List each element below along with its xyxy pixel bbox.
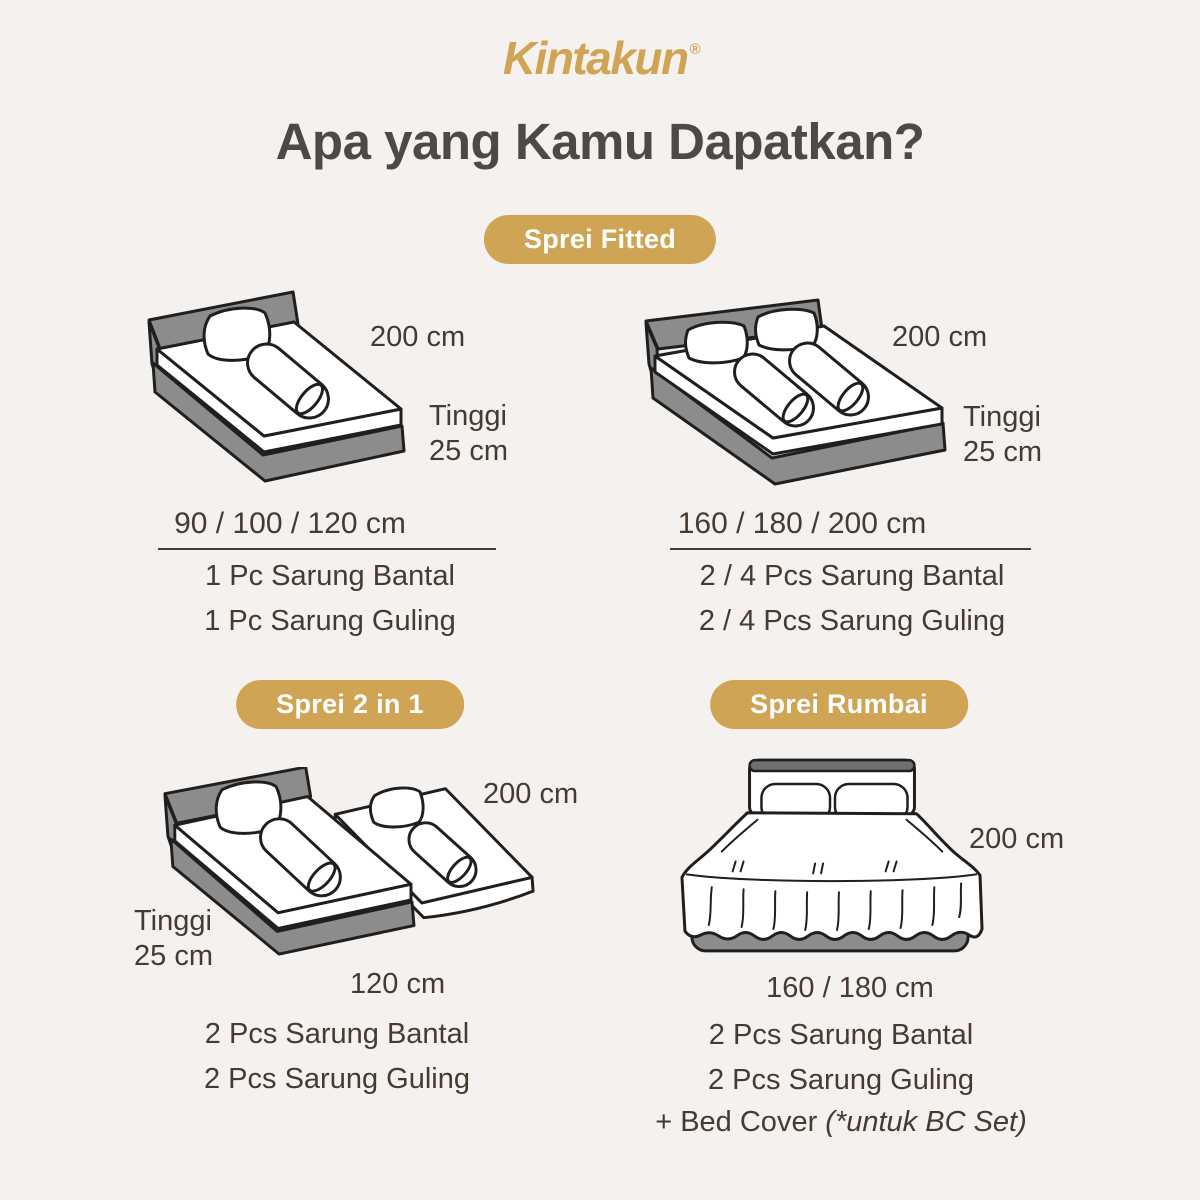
dim-length-rumbai: 160 / 180 cm: [650, 971, 1050, 1006]
badge-sprei-fitted: Sprei Fitted: [484, 215, 716, 264]
included-item: 2 Pcs Sarung Bantal: [641, 1019, 1041, 1052]
second-pillow: [370, 788, 423, 827]
pillow-left: [686, 322, 748, 363]
bedcover-prefix: + Bed Cover: [655, 1106, 825, 1138]
infographic-canvas: Kintakun® Apa yang Kamu Dapatkan? Sprei …: [0, 0, 1200, 1200]
badge-sprei-2in1: Sprei 2 in 1: [236, 680, 464, 729]
dim-height-2in1-line1: Tinggi: [134, 904, 213, 939]
dim-width-2in1: 200 cm: [483, 777, 578, 812]
dim-height-single: Tinggi 25 cm: [429, 399, 508, 469]
dim-height-single-line2: 25 cm: [429, 434, 508, 469]
divider-single: [158, 548, 496, 550]
included-item: 2 Pcs Sarung Guling: [137, 1063, 537, 1096]
page-title: Apa yang Kamu Dapatkan?: [0, 112, 1200, 171]
registered-mark: ®: [690, 41, 700, 58]
included-item: 2 Pcs Sarung Bantal: [137, 1018, 537, 1051]
divider-double: [670, 548, 1031, 550]
brand-logo: Kintakun®: [0, 31, 1200, 85]
included-item: 2 Pcs Sarung Guling: [641, 1064, 1041, 1097]
dim-height-double-line1: Tinggi: [963, 400, 1042, 435]
two-in-one-bed-illustration: [163, 767, 537, 964]
sizes-double: 160 / 180 / 200 cm: [602, 507, 1002, 541]
dim-width-rumbai: 200 cm: [969, 822, 1064, 857]
dim-height-2in1-line2: 25 cm: [134, 939, 213, 974]
rumbai-bed-illustration: [678, 756, 986, 955]
bed-skirt: [682, 813, 982, 940]
dim-width-single: 200 cm: [370, 320, 465, 355]
included-item: 1 Pc Sarung Bantal: [130, 560, 530, 593]
included-item: 2 / 4 Pcs Sarung Bantal: [652, 560, 1052, 593]
dim-length-2in1: 120 cm: [350, 967, 445, 1002]
included-item: 1 Pc Sarung Guling: [130, 605, 530, 638]
dim-width-double: 200 cm: [892, 320, 987, 355]
included-item-bedcover: + Bed Cover (*untuk BC Set): [641, 1106, 1041, 1139]
dim-height-double: Tinggi 25 cm: [963, 400, 1042, 470]
dim-height-double-line2: 25 cm: [963, 435, 1042, 470]
single-bed-illustration: [146, 290, 408, 486]
brand-logo-text: Kintakun: [503, 32, 688, 84]
dim-height-single-line1: Tinggi: [429, 399, 508, 434]
badge-sprei-rumbai: Sprei Rumbai: [710, 680, 968, 729]
included-item: 2 / 4 Pcs Sarung Guling: [652, 605, 1052, 638]
headboard-rim: [750, 760, 915, 771]
bedcover-note: (*untuk BC Set): [825, 1106, 1026, 1138]
sizes-single: 90 / 100 / 120 cm: [90, 507, 490, 541]
dim-height-2in1: Tinggi 25 cm: [134, 904, 213, 974]
